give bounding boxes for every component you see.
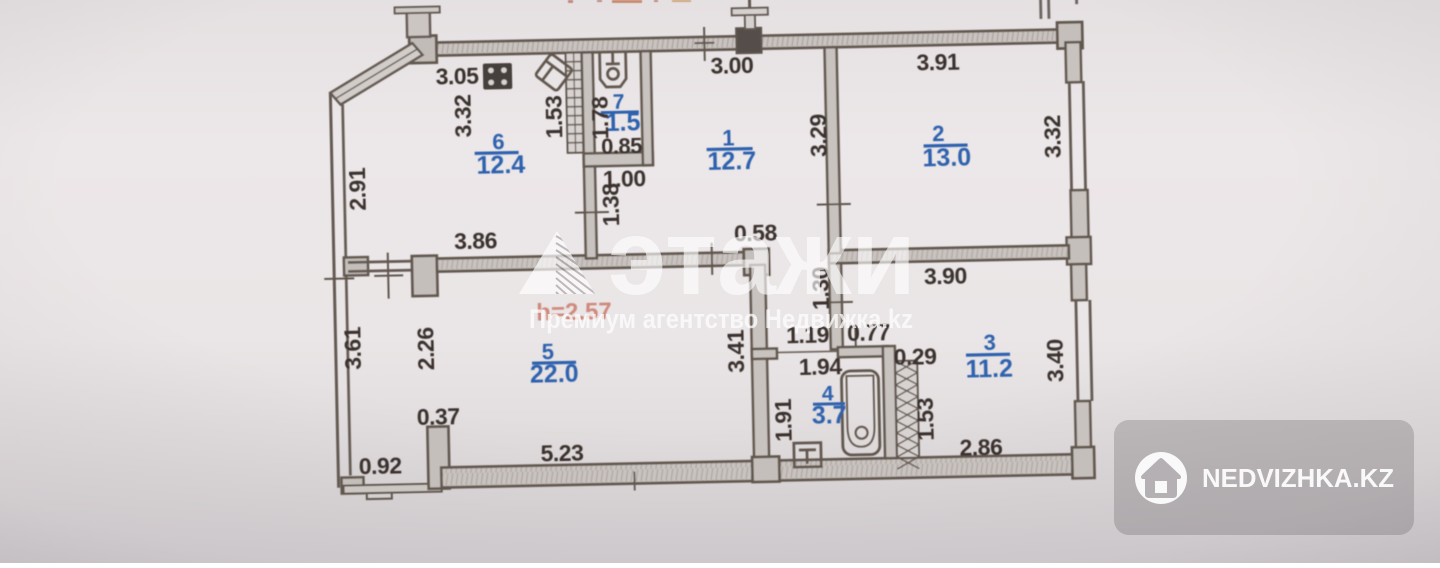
svg-text:0.92: 0.92 [359,452,402,479]
svg-text:3.41: 3.41 [722,329,749,373]
svg-text:2.91: 2.91 [344,167,371,211]
svg-text:1.53: 1.53 [540,95,567,138]
svg-text:2: 2 [932,121,945,146]
svg-text:3.32: 3.32 [1039,115,1066,158]
svg-text:3.90: 3.90 [924,263,967,290]
svg-text:3.32: 3.32 [449,94,476,137]
svg-text:11.2: 11.2 [965,355,1013,384]
svg-text:1.53: 1.53 [912,398,939,441]
svg-text:NEDVIZHKA.KZ: NEDVIZHKA.KZ [1202,463,1394,493]
svg-text:1.91: 1.91 [770,398,797,442]
svg-text:3.61: 3.61 [339,326,366,370]
svg-text:0.29: 0.29 [893,343,936,370]
svg-text:0.85: 0.85 [601,133,643,159]
svg-text:3.29: 3.29 [805,114,832,157]
svg-text:3.05: 3.05 [435,63,479,90]
svg-text:3.7: 3.7 [812,401,847,430]
svg-text:22.0: 22.0 [530,360,579,389]
svg-text:3.40: 3.40 [1042,339,1069,382]
svg-text:2.26: 2.26 [412,327,439,370]
svg-text:2.86: 2.86 [959,434,1002,461]
svg-text:5.23: 5.23 [540,440,583,467]
svg-text:1.94: 1.94 [799,353,843,380]
svg-text:3: 3 [983,330,996,355]
svg-text:Премиум агентство Недвижка.kz: Премиум агентство Недвижка.kz [529,304,913,334]
svg-text:0.37: 0.37 [417,403,460,430]
svg-text:3.00: 3.00 [710,52,753,79]
svg-text:этажи: этажи [608,196,916,317]
svg-text:12.4: 12.4 [476,151,525,180]
svg-text:12.7: 12.7 [707,147,756,176]
svg-text:3.91: 3.91 [916,49,960,76]
svg-text:3.86: 3.86 [454,227,497,254]
svg-text:13.0: 13.0 [922,143,971,172]
